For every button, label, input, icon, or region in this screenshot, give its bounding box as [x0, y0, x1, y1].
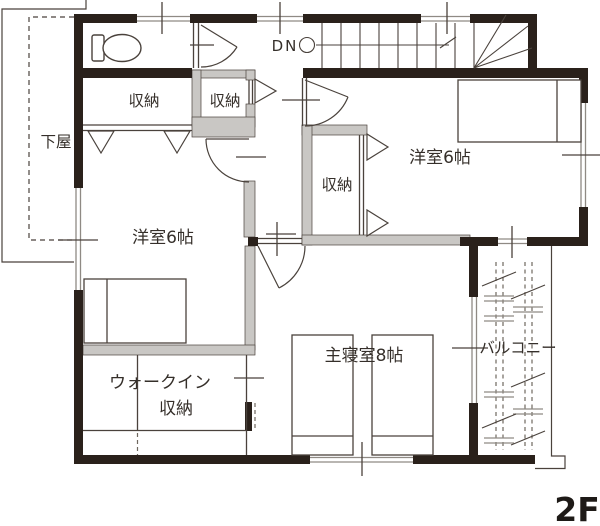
label-geya: 下屋	[40, 133, 71, 151]
dashed-partitions	[138, 403, 256, 455]
label-western-left: 洋室6帖	[132, 228, 194, 248]
label-closet-center: 収納	[321, 176, 352, 194]
stair-landing-circle	[300, 38, 315, 53]
master-door	[258, 246, 305, 288]
pent-roof-outline	[2, 0, 86, 262]
floor-plan-svg: 下屋 収納 収納 収納 洋室6帖 洋室6帖 主寝室8帖 ウォークイン 収納 バル…	[0, 0, 600, 526]
label-closet-top-middle: 収納	[209, 92, 240, 110]
label-western-right: 洋室6帖	[409, 148, 471, 168]
doors	[201, 25, 348, 288]
label-balcony: バルコニー	[479, 339, 556, 357]
label-closet-top-left: 収納	[128, 92, 159, 110]
toilet-fixture	[92, 35, 141, 62]
western-right-door	[305, 80, 348, 126]
balcony-railing	[535, 246, 565, 469]
bed-western-left	[84, 279, 186, 343]
western-left-door	[206, 139, 249, 182]
label-stairs-down: DN	[272, 37, 299, 55]
label-floor: 2F	[554, 490, 600, 526]
label-walkin-line1: ウォークイン	[109, 373, 211, 393]
label-walkin-line2: 収納	[159, 399, 193, 419]
label-master-bedroom: 主寝室8帖	[325, 345, 404, 366]
bed-western-right	[458, 80, 581, 142]
toilet-door	[201, 25, 237, 67]
floor-plan: 下屋 収納 収納 収納 洋室6帖 洋室6帖 主寝室8帖 ウォークイン 収納 バル…	[0, 0, 600, 526]
